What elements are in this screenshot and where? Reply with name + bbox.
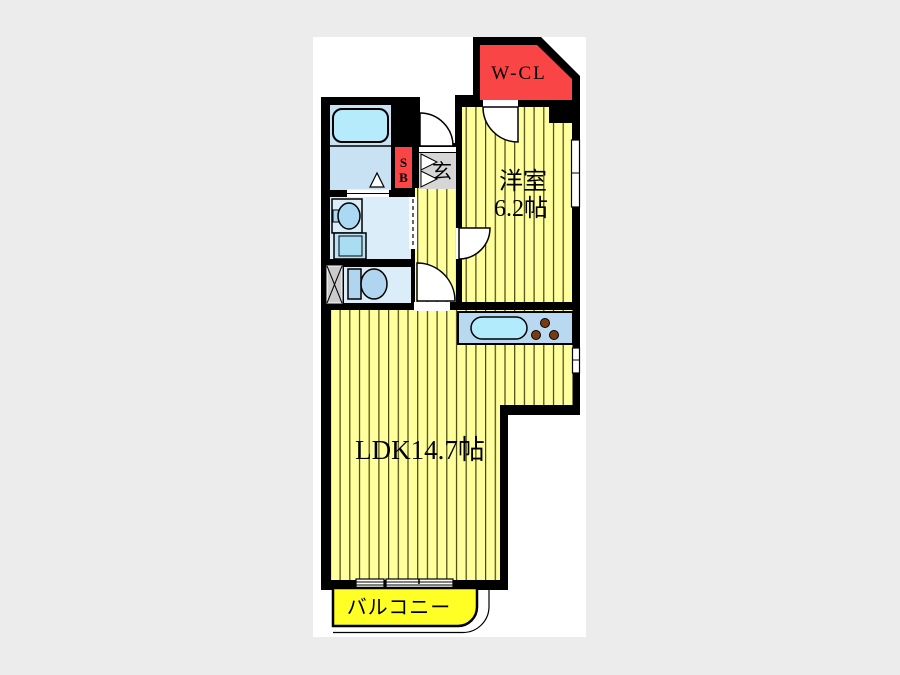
wall-bedroom-notch <box>549 107 572 123</box>
shoe-box-b: B <box>399 170 408 185</box>
floor-plan-page: W-CL 洋室 6.2帖 玄 S B <box>0 0 900 675</box>
balcony-label: バルコニー <box>347 597 452 619</box>
ldk-label: LDK14.7帖 <box>355 435 485 465</box>
floor-plan-canvas: W-CL 洋室 6.2帖 玄 S B <box>0 0 900 675</box>
bath-door-opening <box>347 190 389 198</box>
kitchen-sink <box>471 317 527 339</box>
bedroom-size: 6.2帖 <box>494 195 548 222</box>
entrance-label: 玄 <box>432 160 452 183</box>
window-ldk-bottom-left <box>356 579 384 588</box>
washroom-sliding-door <box>409 197 417 249</box>
toilet-fixture <box>348 269 387 299</box>
kitchen-counter <box>458 312 573 344</box>
pipe-space <box>327 266 342 303</box>
shoe-box-s: S <box>400 155 407 170</box>
washing-machine <box>334 233 366 259</box>
bathtub <box>333 109 388 142</box>
bedroom-name: 洋室 <box>499 168 547 195</box>
window-ldk-right <box>573 348 580 373</box>
window-ldk-bottom-right <box>386 579 453 588</box>
wcl-label: W-CL <box>491 63 547 84</box>
ldk-door-opening <box>414 302 450 311</box>
window-bedroom <box>572 140 580 207</box>
